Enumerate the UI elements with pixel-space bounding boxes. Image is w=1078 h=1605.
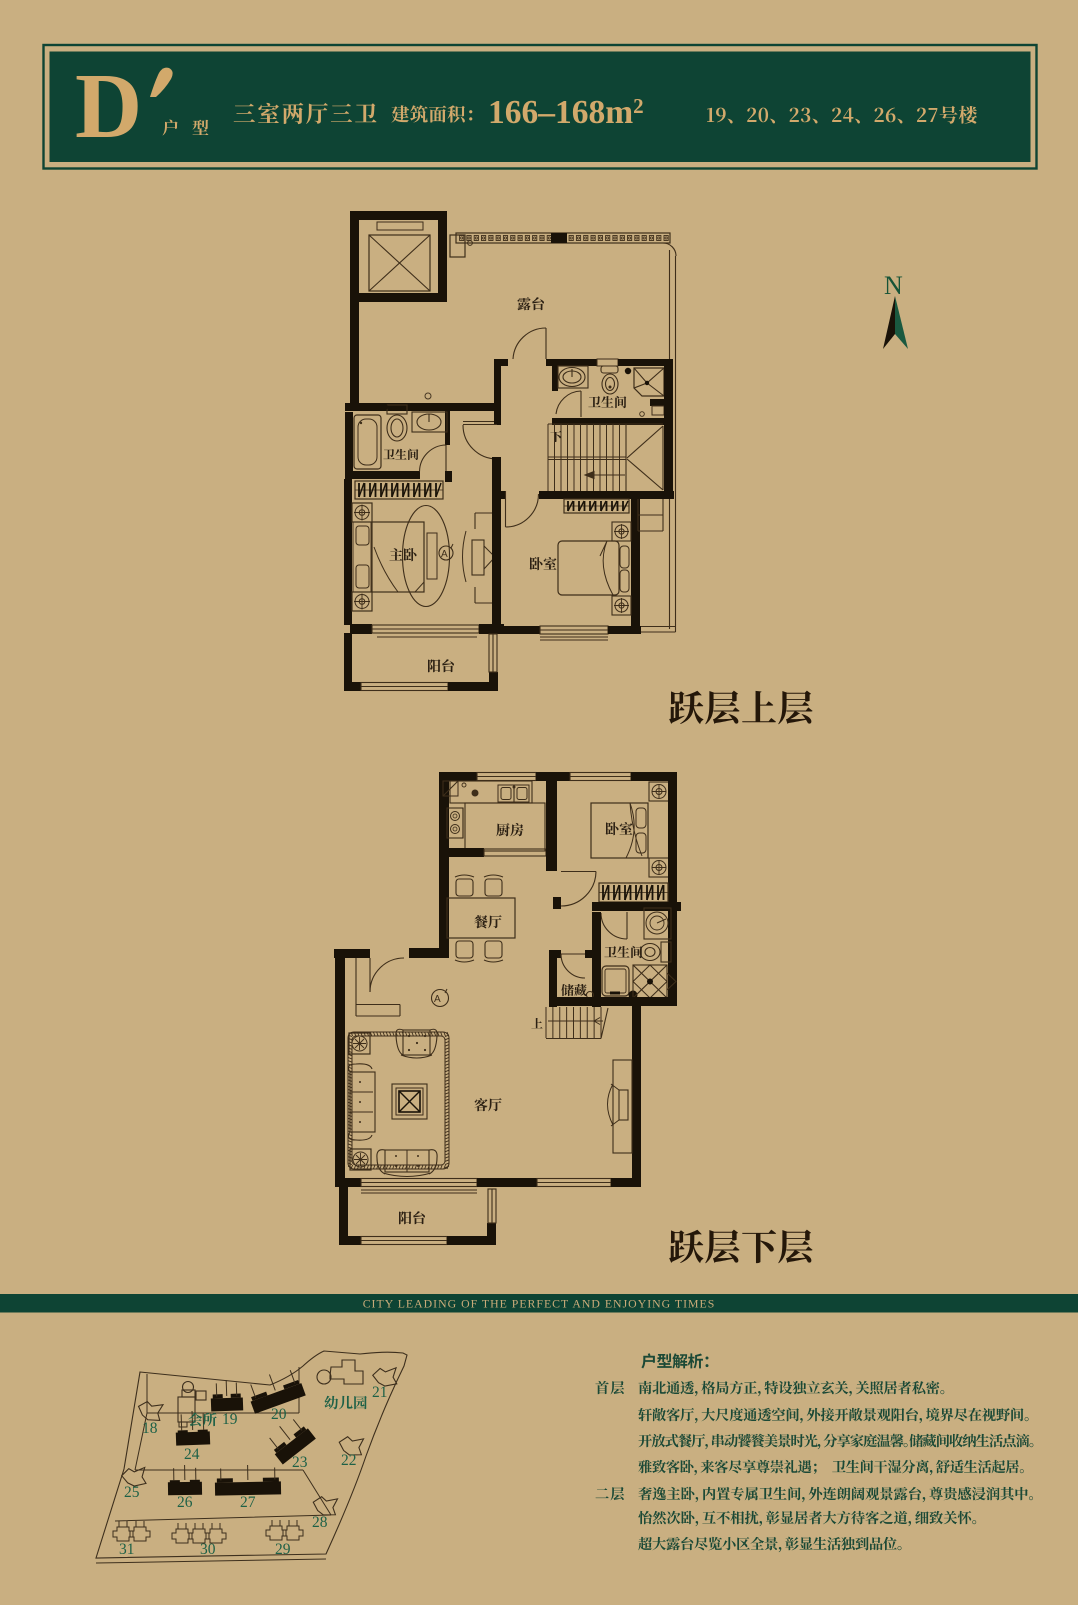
svg-text:23: 23 [292,1454,308,1471]
svg-text:31: 31 [119,1541,135,1558]
svg-text:166–168m2: 166–168m2 [488,94,644,131]
svg-text:D: D [75,55,142,158]
svg-text:A: A [434,994,441,1005]
svg-text:18: 18 [142,1420,158,1437]
svg-text:25: 25 [124,1484,140,1501]
svg-text:30: 30 [200,1541,216,1558]
svg-text:20: 20 [271,1406,287,1423]
svg-text:24: 24 [184,1446,200,1463]
svg-text:26: 26 [177,1494,193,1511]
svg-text:22: 22 [341,1452,357,1469]
svg-text:A: A [441,549,448,560]
svg-text:19: 19 [222,1411,238,1428]
svg-text:21: 21 [372,1384,388,1401]
svg-text:27: 27 [240,1494,256,1511]
svg-text:28: 28 [312,1514,328,1531]
svg-text:29: 29 [275,1541,291,1558]
svg-text:N: N [884,271,903,300]
svg-text:CITY LEADING OF THE PERFECT AN: CITY LEADING OF THE PERFECT AND ENJOYING… [363,1297,716,1311]
